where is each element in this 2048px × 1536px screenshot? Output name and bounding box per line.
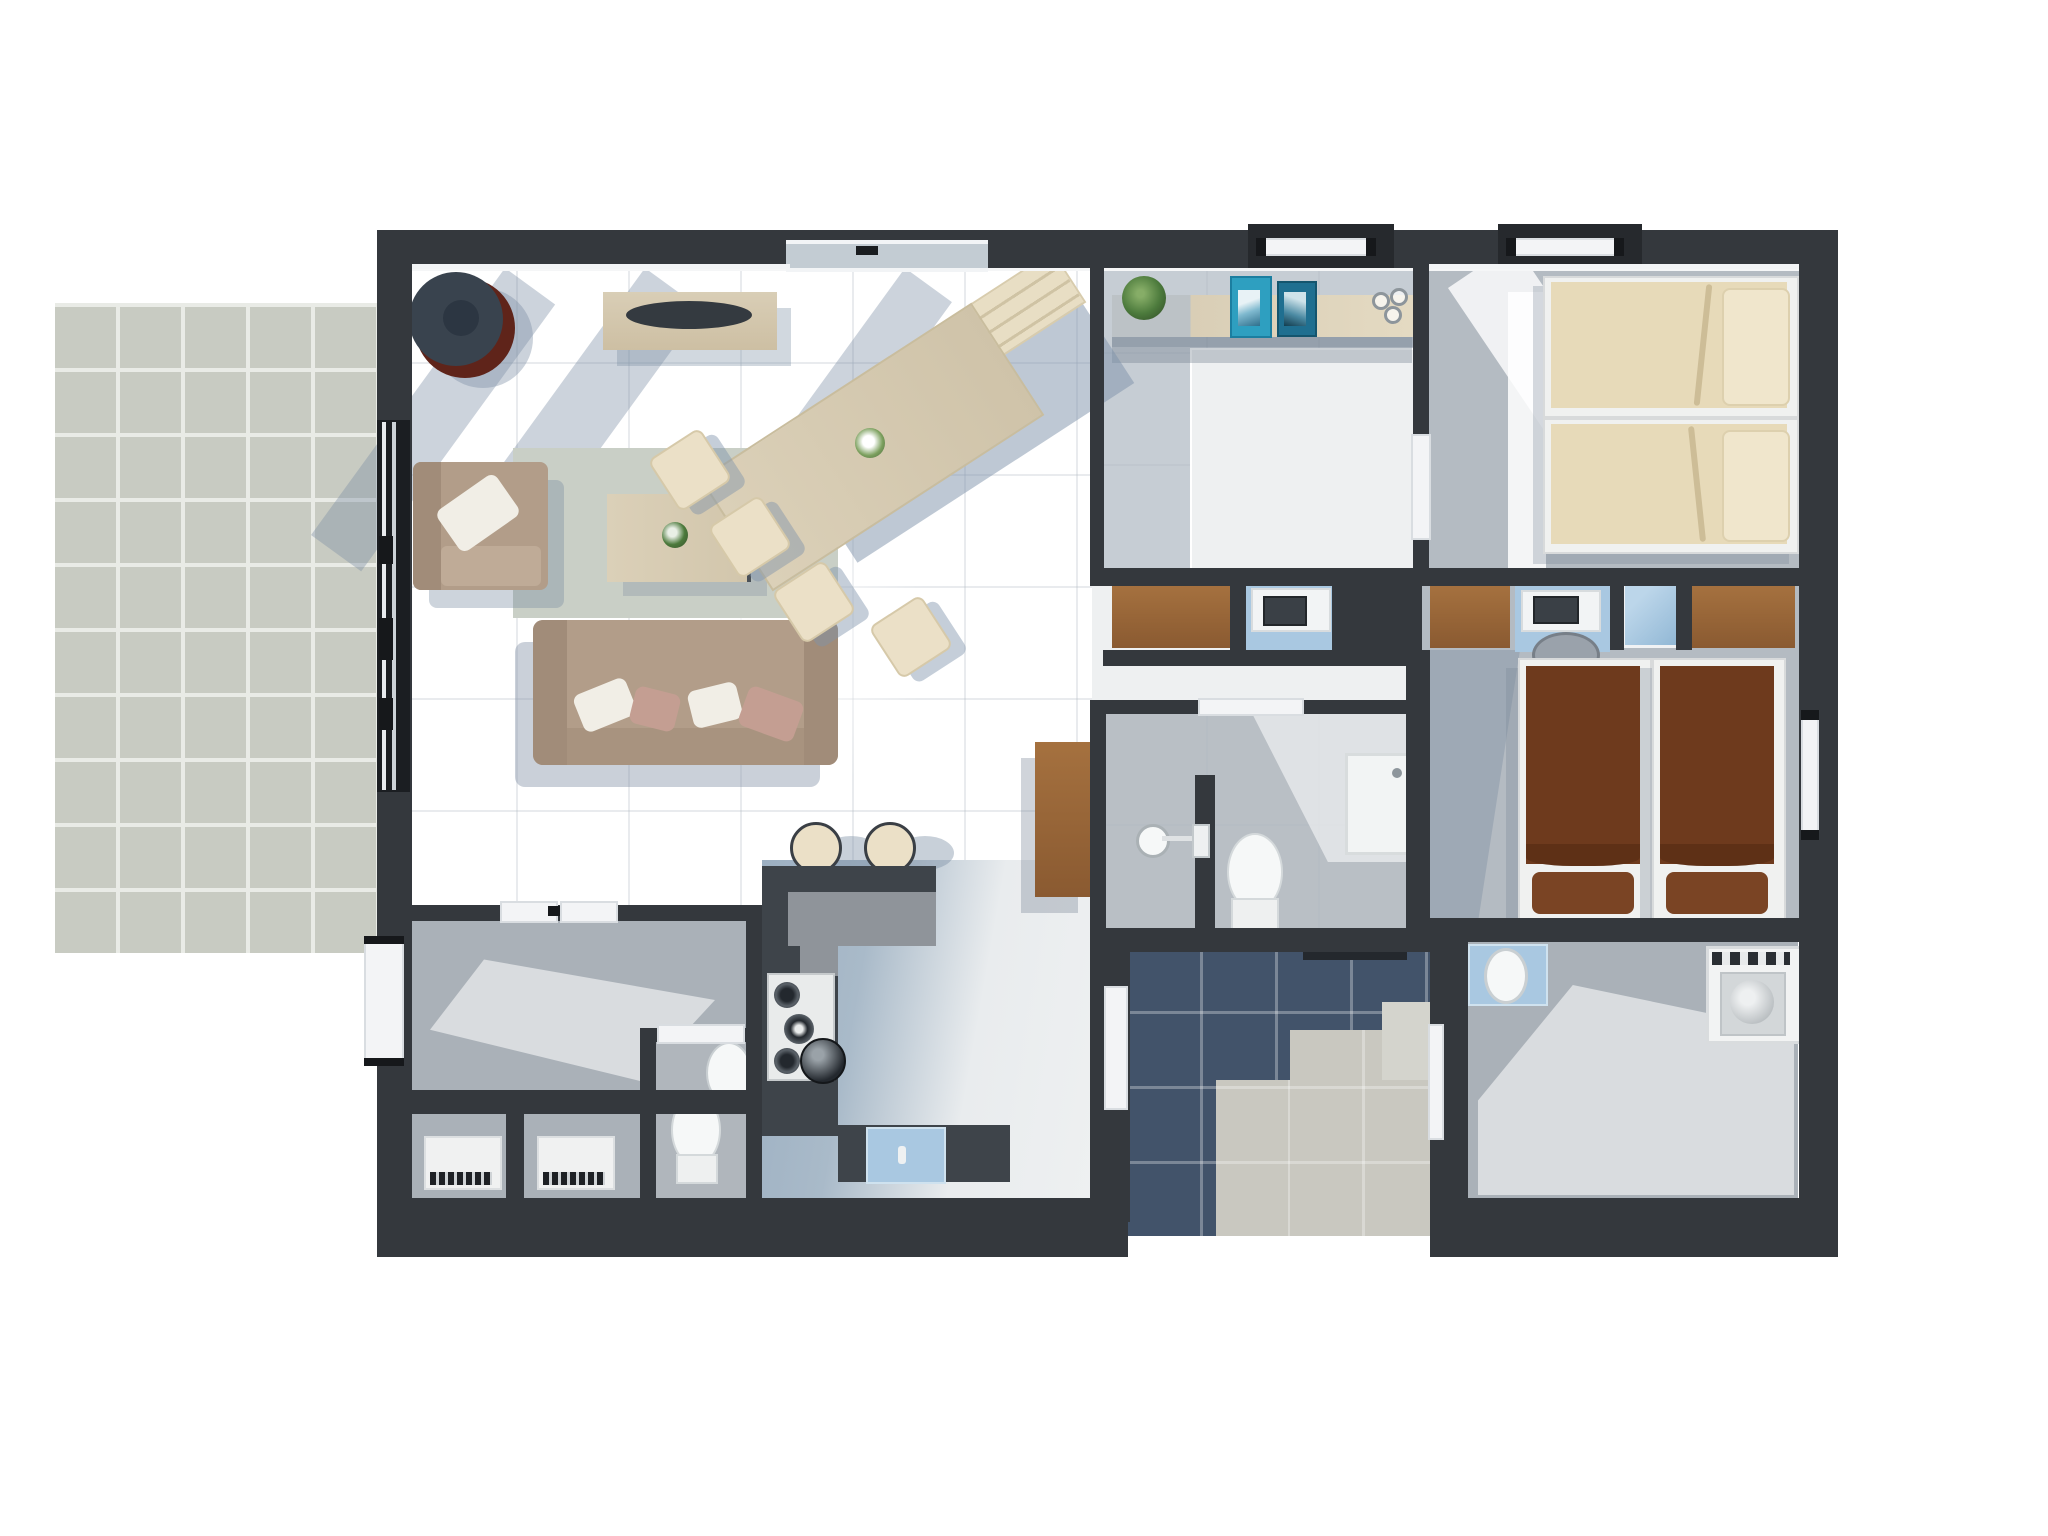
top-sliding-door-jamb <box>1366 238 1376 256</box>
wardrobe <box>1430 586 1510 648</box>
sofa-arm-left <box>533 620 567 765</box>
right-exterior-door-jamb <box>1801 710 1819 720</box>
wall-band-top <box>1103 568 1799 586</box>
hob-burner <box>774 1048 800 1074</box>
standing-book-image <box>1284 292 1306 326</box>
top-sliding-door <box>1506 238 1624 256</box>
closet-grate <box>430 1172 492 1185</box>
dining-table-flowers <box>855 428 885 458</box>
patio-door-track <box>392 422 396 790</box>
kitchen-porch-door <box>1104 986 1128 1110</box>
wc-door <box>657 1024 745 1044</box>
hob-burner <box>784 1014 814 1044</box>
storage-wall-bottom <box>406 1090 748 1114</box>
wall-media-bedroom-upper <box>1413 266 1429 438</box>
wall-closet-filler <box>1230 586 1246 650</box>
patio-door-handle <box>379 698 393 730</box>
closet-grate <box>543 1172 605 1185</box>
wc-wall-left <box>640 1028 656 1202</box>
shelf-glassware <box>1384 306 1402 324</box>
hall-cabinet <box>1035 742 1092 897</box>
washing-machine-drum <box>1730 980 1774 1024</box>
top-sliding-door <box>1256 238 1376 256</box>
media-bedroom-door <box>1411 434 1431 540</box>
porch-beige-step-small <box>1382 1002 1430 1080</box>
right-exterior-door-jamb <box>1801 830 1819 840</box>
utility-door <box>1428 1024 1444 1140</box>
utility-basin <box>1484 948 1528 1004</box>
floor-plan-render <box>0 0 2048 1536</box>
kitchen-faucet <box>898 1146 906 1164</box>
bed-mattress-brown <box>1660 666 1774 864</box>
bed-pillow-brown <box>1666 872 1768 914</box>
bathroom-wall-bottom <box>1090 928 1430 952</box>
wall-closet-filler <box>1610 586 1624 650</box>
armchair-seat <box>441 546 541 586</box>
wardrobe <box>1112 586 1230 648</box>
storage-kitchen-wall <box>746 905 762 1222</box>
shelf-plant <box>1122 276 1166 320</box>
wall-closet-filler <box>1676 586 1692 650</box>
kitchen-counter-surface-return <box>800 892 838 976</box>
washing-machine-panel <box>1712 952 1790 965</box>
media-room-rug <box>1192 350 1413 576</box>
top-sliding-door-jamb <box>1614 238 1624 256</box>
shower-tray <box>1345 753 1415 855</box>
closet-divider <box>506 1114 524 1202</box>
left-exterior-door-jamb <box>364 1058 404 1066</box>
bedroom1-runner <box>1508 292 1546 578</box>
monitor <box>1533 596 1579 624</box>
shelf-glassware <box>1390 288 1408 306</box>
bathroom-wall-right <box>1406 650 1430 950</box>
top-sliding-door-jamb <box>1256 238 1266 256</box>
wc-toilet-tank <box>676 1154 718 1184</box>
top-window <box>786 240 988 272</box>
wall-dining-media <box>1090 262 1104 586</box>
patio-door-track <box>382 422 386 790</box>
bed-fold-brown <box>1660 844 1774 866</box>
bed-pillow-beige <box>1722 288 1790 406</box>
bathroom-wall-top-a <box>1090 700 1202 714</box>
wall-band-bottom <box>1103 650 1423 666</box>
left-exterior-door <box>364 936 404 1066</box>
media-shelf-shadow <box>1112 335 1412 363</box>
patio-tiles <box>55 303 377 953</box>
kettle <box>800 1038 846 1084</box>
round-lounge-chair-center <box>443 300 479 336</box>
bedroom2-wall-bottom <box>1430 918 1799 942</box>
storage-door <box>560 901 618 923</box>
wall-media-bedroom-lower <box>1413 536 1429 586</box>
top-window-handle <box>856 246 878 255</box>
living-window-sill <box>412 264 790 269</box>
hob-burner <box>774 982 800 1008</box>
kitchen-sink-blue <box>866 1127 946 1184</box>
bottom-exterior-wall-right <box>1430 1198 1838 1257</box>
bed-pillow-beige <box>1722 430 1790 542</box>
top-sliding-door-jamb <box>1506 238 1516 256</box>
right-exterior-door <box>1801 710 1819 840</box>
decor-bowl <box>626 301 752 329</box>
standing-book-image <box>1238 290 1260 326</box>
bathroom-wall-left <box>1090 700 1106 950</box>
bedroom1-wall-sill <box>1429 264 1799 269</box>
armchair-back <box>413 462 441 590</box>
wall-closet-filler <box>1332 586 1422 650</box>
bed-pillow-brown <box>1532 872 1634 914</box>
bathroom-door <box>1198 698 1304 716</box>
shower-head <box>1136 824 1170 858</box>
bed-fold-brown <box>1526 844 1640 866</box>
wardrobe <box>1690 586 1795 648</box>
laptop <box>1263 596 1307 626</box>
bed-mattress-brown <box>1526 666 1640 864</box>
patio-door-handle <box>379 618 393 660</box>
shower-faucet <box>1392 768 1402 778</box>
coffee-table-plant <box>662 522 688 548</box>
left-exterior-door-jamb <box>364 936 404 944</box>
shower-valve <box>1192 824 1210 858</box>
storage-door-handle <box>548 906 560 916</box>
patio-door-handle <box>379 536 393 564</box>
